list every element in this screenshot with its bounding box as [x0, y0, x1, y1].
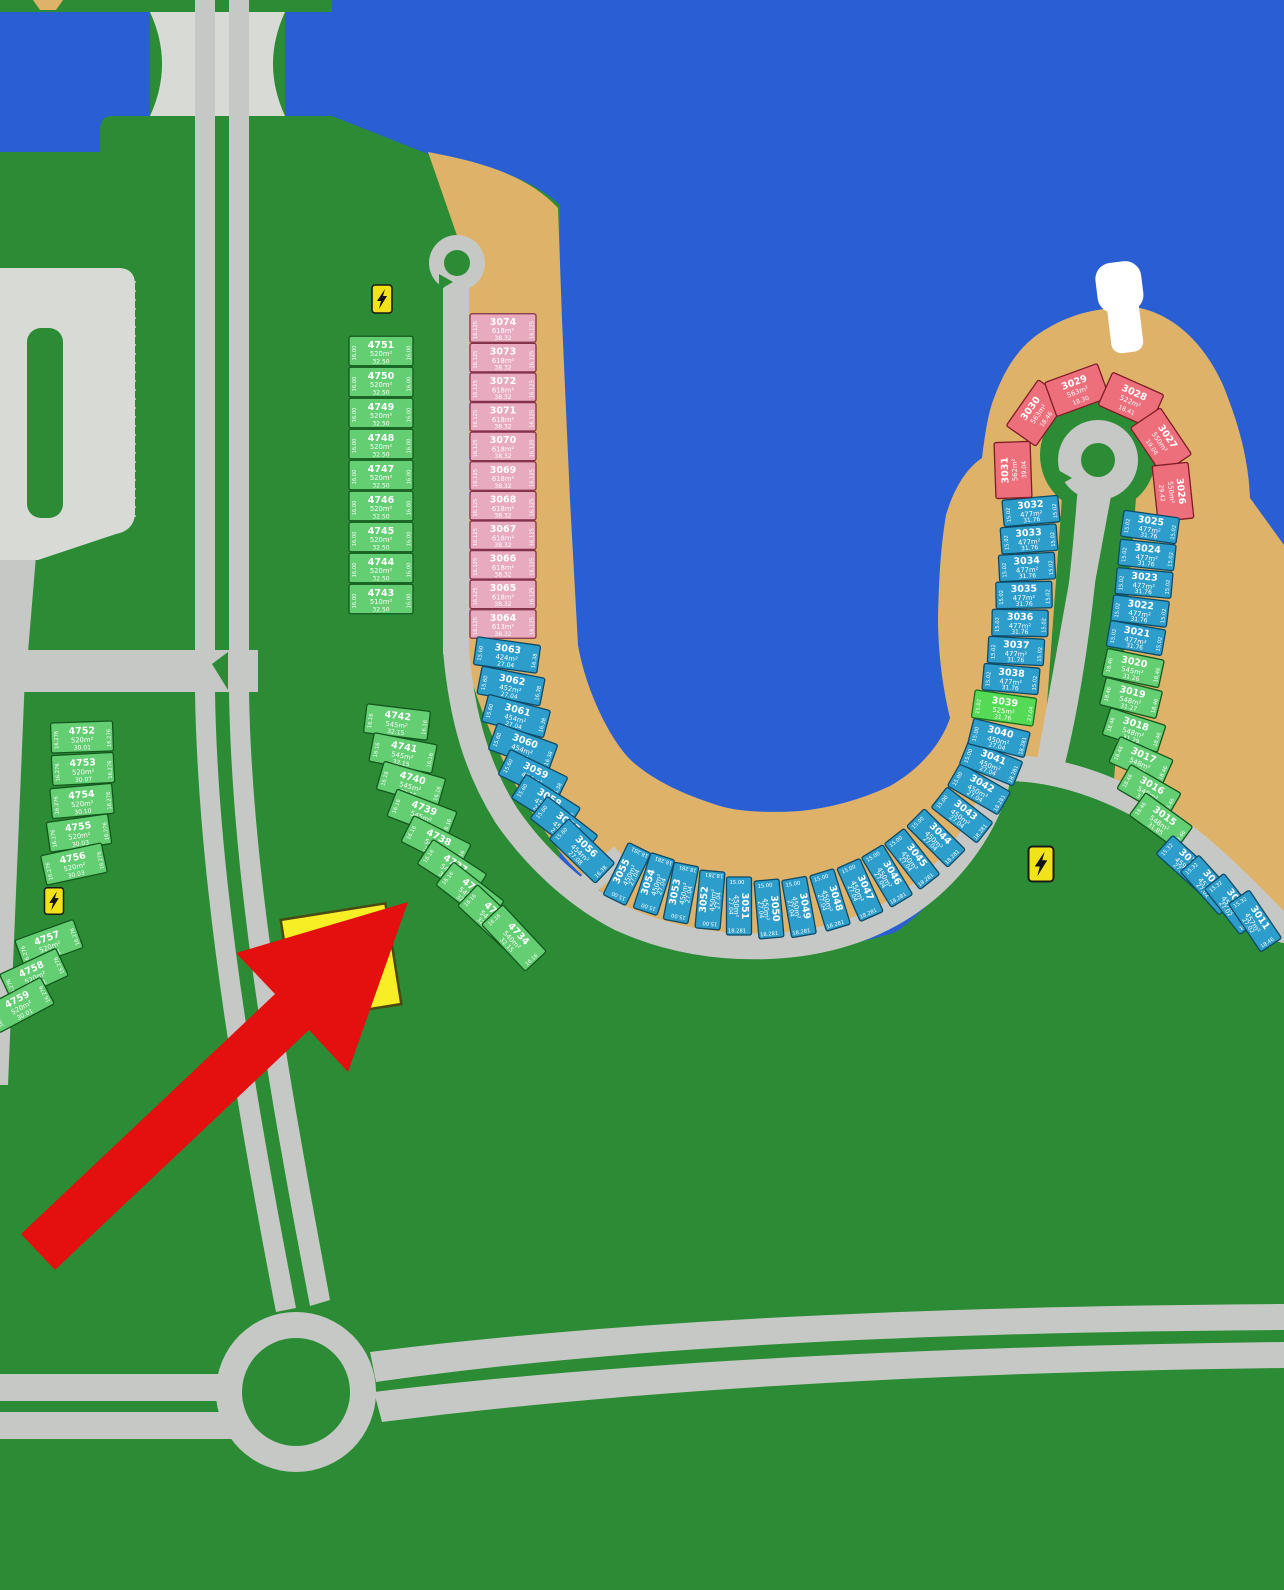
lot-label: 38.32 [494, 601, 511, 608]
lot-label: 31.76 [1007, 656, 1025, 664]
lot-label: 38.32 [494, 453, 511, 460]
lot-label: 520m² [370, 412, 393, 420]
lot-3066[interactable]: 3066618m²38.3216.12516.125 [470, 551, 536, 580]
lot-label: 520m² [370, 381, 393, 389]
main-road-north-right-lane [229, 0, 249, 656]
lot-3033[interactable]: 3033477m²31.7615.0215.02 [1000, 524, 1058, 554]
lot-label: 16.125 [530, 499, 536, 517]
lot-4744[interactable]: 4744520m²32.5016.0016.00 [349, 553, 413, 583]
culdesac-west-island [444, 250, 470, 276]
lot-label: 16.276 [106, 729, 113, 747]
lot-label: 38.32 [494, 424, 511, 431]
lot-label: 16.125 [530, 321, 536, 339]
lot-4748[interactable]: 4748520m²32.5016.0016.00 [349, 429, 413, 459]
lot-label: 16.00 [407, 346, 413, 361]
lot-label: 16.00 [352, 563, 358, 578]
lot-label: 16.125 [530, 528, 536, 546]
lot-label: 18.281 [728, 929, 746, 935]
lot-3070[interactable]: 3070618m²38.3216.12516.125 [470, 432, 536, 461]
lot-label: 15.02 [1037, 647, 1044, 662]
lot-label: 16.125 [473, 321, 479, 339]
lot-4743[interactable]: 4743510m²32.5016.0016.00 [349, 584, 413, 614]
lot-label: 15.02 [1041, 618, 1047, 633]
lot-label: 4743 [368, 588, 394, 599]
lot-label: 4750 [368, 371, 395, 382]
lot-3032[interactable]: 3032477m²31.7615.0215.02 [1002, 495, 1060, 526]
lot-label: 27.04 [727, 897, 734, 914]
lot-label: 16.125 [530, 469, 536, 487]
lot-label: 31.76 [1016, 601, 1033, 608]
lot-3072[interactable]: 3072618m²38.3216.12516.125 [470, 373, 536, 402]
lot-4749[interactable]: 4749520m²32.5016.0016.00 [349, 398, 413, 428]
lot-label: 16.125 [530, 558, 536, 576]
lot-label: 3068 [490, 494, 517, 505]
map-canvas: 4751520m²32.5016.0016.004750520m²32.5016… [0, 0, 1284, 1590]
lot-label: 15.02 [991, 644, 998, 659]
lot-label: 16.00 [407, 439, 413, 454]
lot-label: 520m² [370, 567, 393, 575]
lot-label: 16.00 [407, 377, 413, 392]
lot-3037[interactable]: 3037477m²31.7615.0215.02 [987, 636, 1044, 665]
lot-3034[interactable]: 3034477m²31.7615.0215.02 [998, 552, 1055, 581]
lot-4745[interactable]: 4745520m²32.5016.0016.00 [349, 522, 413, 552]
lot-3050[interactable]: 3050450m²27.0415.0018.281 [754, 879, 784, 939]
lot-label: 32.50 [372, 358, 389, 365]
lot-label: 16.00 [352, 377, 358, 392]
lot-label: 32.50 [372, 420, 389, 427]
lot-label: 16.125 [473, 469, 479, 487]
lot-label: 38.32 [494, 483, 511, 490]
lot-4750[interactable]: 4750520m²32.5016.0016.00 [349, 367, 413, 397]
lot-label: 39.04 [1021, 461, 1029, 479]
lot-label: 16.125 [473, 439, 479, 457]
lot-label: 3071 [490, 406, 516, 417]
lot-label: 16.00 [407, 470, 413, 485]
lot-label: 510m² [370, 598, 393, 606]
high-voltage-icon [45, 888, 64, 915]
lot-label: 15.02 [1045, 589, 1051, 604]
lot-label: 32.50 [372, 482, 389, 489]
lot-label: 16.125 [530, 351, 536, 369]
masterplan-map: 4751520m²32.5016.0016.004750520m²32.5016… [0, 0, 1284, 1590]
high-voltage-icon [372, 285, 392, 313]
lot-label: 16.276 [54, 731, 61, 749]
lot-4752[interactable]: 4752520m²30.0116.27616.276 [50, 721, 113, 753]
lot-label: 520m² [370, 536, 393, 544]
lot-3023[interactable]: 3023477m²31.7615.0215.02 [1115, 568, 1173, 599]
lot-label: 16.125 [473, 351, 479, 369]
lot-label: 3070 [490, 435, 517, 446]
lot-label: 4748 [368, 433, 395, 444]
roundabout-west-arm-lane1 [0, 1374, 232, 1401]
lot-3067[interactable]: 3067618m²38.3216.12516.125 [470, 521, 536, 550]
lot-label: 32.50 [372, 451, 389, 458]
lot-3036[interactable]: 3036477m²31.7615.0215.02 [992, 609, 1048, 636]
lot-label: 32.50 [372, 606, 389, 613]
lot-label: 3074 [490, 317, 517, 328]
lot-3064[interactable]: 3064613m²38.3216.12516.125 [470, 610, 536, 639]
lot-3026[interactable]: 3026550m²29.42 [1152, 462, 1194, 521]
lot-label: 16.125 [473, 410, 479, 428]
lot-3069[interactable]: 3069618m²38.3216.12516.125 [470, 462, 536, 491]
lot-label: 15.02 [1048, 560, 1055, 575]
lot-label: 4747 [368, 464, 394, 475]
lot-label: 38.32 [494, 394, 511, 401]
lot-3074[interactable]: 3074618m²38.3216.12516.125 [470, 314, 536, 343]
lot-label: 31.76 [1011, 629, 1028, 636]
lot-label: 16.00 [407, 408, 413, 423]
high-voltage-icon [1029, 847, 1054, 882]
lot-4747[interactable]: 4747520m²32.5016.0016.00 [349, 460, 413, 490]
lot-label: 3073 [490, 346, 516, 357]
lot-label: 16.125 [530, 380, 536, 398]
lot-label: 16.00 [407, 594, 413, 609]
lot-label: 15.02 [1002, 563, 1009, 578]
parking-island [27, 328, 63, 518]
lot-label: 16.276 [107, 760, 114, 778]
lot-3065[interactable]: 3065618m²38.3216.12516.125 [470, 580, 536, 609]
lot-3035[interactable]: 3035477m²31.7615.0215.02 [996, 581, 1052, 608]
lot-4754[interactable]: 4754520m²30.1016.27616.276 [50, 783, 114, 818]
lot-label: 4744 [368, 557, 395, 568]
lot-label: 16.125 [530, 439, 536, 457]
lot-label: 16.00 [352, 501, 358, 516]
lot-label: 4751 [368, 340, 394, 351]
inner-loop-road-north [443, 288, 469, 654]
culdesac-east-island [1081, 443, 1115, 477]
lot-label: 16.00 [352, 470, 358, 485]
lot-label: 16.125 [473, 617, 479, 635]
lot-label: 32.50 [372, 575, 389, 582]
lot-label: 16.00 [352, 439, 358, 454]
lot-3071[interactable]: 3071618m²38.3216.12516.125 [470, 403, 536, 432]
lot-label: 32.50 [372, 389, 389, 396]
lot-label: 520m² [370, 350, 393, 358]
lot-label: 16.125 [473, 558, 479, 576]
lot-label: 3031 [1000, 457, 1012, 484]
lot-4746[interactable]: 4746520m²32.5016.0016.00 [349, 491, 413, 521]
lot-label: 16.276 [55, 763, 62, 781]
lot-label: 3051 [739, 893, 750, 919]
lot-label: 16.125 [473, 528, 479, 546]
lot-label: 38.32 [494, 512, 511, 519]
lot-label: 16.125 [473, 499, 479, 517]
lot-label: 520m² [370, 474, 393, 482]
lot-label: 4745 [368, 526, 394, 537]
lot-3052[interactable]: 3052450m²27.0415.0018.281 [695, 870, 725, 930]
lot-3068[interactable]: 3068618m²38.3216.12516.125 [470, 491, 536, 519]
bridge-abutment [150, 12, 285, 116]
lot-label: 3069 [490, 465, 516, 476]
lot-3073[interactable]: 3073618m²38.3216.12516.125 [470, 343, 536, 372]
lot-3038[interactable]: 3038477m²31.7615.0215.02 [982, 663, 1040, 694]
lot-label: 16.00 [352, 346, 358, 361]
lot-label: 15.02 [1004, 535, 1011, 550]
lot-3031[interactable]: 3031562m²39.04 [994, 441, 1032, 498]
lot-label: 16.00 [352, 532, 358, 547]
lot-4751[interactable]: 4751520m²32.5016.0016.00 [349, 336, 413, 366]
lot-4753[interactable]: 4753520m²30.0716.27616.276 [51, 752, 114, 785]
lot-label: 4746 [368, 495, 395, 506]
main-road-north-left-lane [195, 0, 215, 656]
lot-label: 30.01 [74, 744, 92, 752]
lot-label: 520m² [370, 505, 393, 513]
lot-label: 16.00 [352, 408, 358, 423]
lot-label: 15.00 [730, 880, 745, 886]
lot-3051[interactable]: 3051450m²27.0415.0018.281 [727, 877, 752, 935]
roundabout-island [242, 1338, 350, 1446]
lot-label: 3066 [490, 554, 517, 565]
lot-label: 16.00 [352, 594, 358, 609]
lot-label: 16.125 [530, 587, 536, 605]
lot-label: 520m² [370, 443, 393, 451]
lot-label: 31.76 [1019, 572, 1037, 580]
lot-label: 16.00 [407, 563, 413, 578]
lot-label: 38.32 [494, 542, 511, 549]
lot-label: 16.125 [530, 410, 536, 428]
lot-label: 562m² [1011, 458, 1020, 481]
lot-label: 15.02 [1050, 532, 1057, 547]
lot-label: 16.00 [407, 532, 413, 547]
lot-label: 4749 [368, 402, 394, 413]
lot-label: 38.32 [494, 572, 511, 579]
lot-label: 31.76 [1021, 544, 1039, 552]
lot-label: 38.32 [494, 335, 511, 342]
parking-lot [0, 268, 135, 560]
lot-label: 3064 [490, 613, 517, 624]
lot-label: 16.125 [473, 380, 479, 398]
lot-label: 3065 [490, 583, 516, 594]
lot-label: 16.125 [530, 617, 536, 635]
lot-label: 15.02 [995, 617, 1001, 632]
lot-label: 38.32 [494, 631, 511, 638]
lot-label: 16.00 [407, 501, 413, 516]
lot-label: 3067 [490, 524, 516, 535]
roundabout-west-arm-lane2 [0, 1412, 232, 1439]
lot-label: 32.50 [372, 513, 389, 520]
lot-label: 15.02 [999, 590, 1005, 605]
lot-label: 16.125 [473, 587, 479, 605]
lot-label: 32.50 [372, 544, 389, 551]
lot-label: 38.32 [494, 364, 511, 371]
lot-label: 3072 [490, 376, 516, 387]
lot-3024[interactable]: 3024477m²31.7615.0215.02 [1118, 539, 1176, 571]
lot-label: 30.07 [75, 776, 93, 784]
